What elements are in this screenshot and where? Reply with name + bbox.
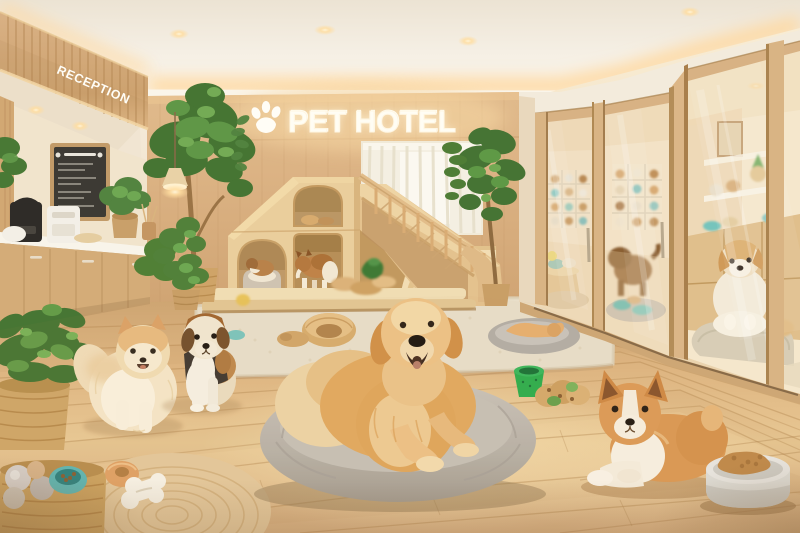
- svg-text:PET HOTEL: PET HOTEL: [288, 104, 456, 139]
